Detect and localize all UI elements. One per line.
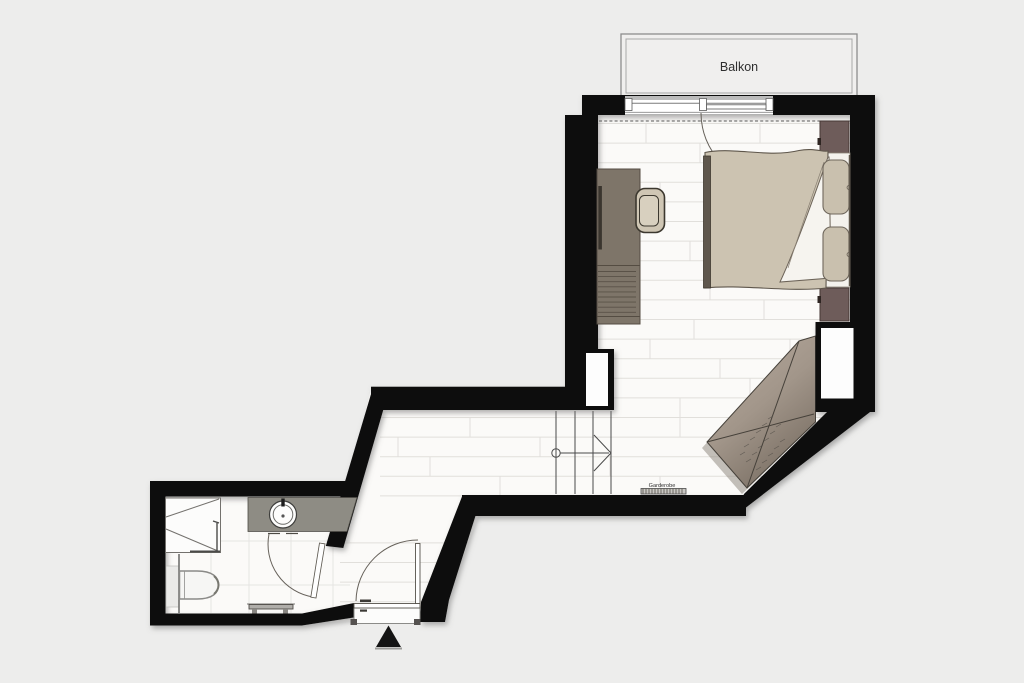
svg-text:Balkon: Balkon	[720, 60, 758, 74]
